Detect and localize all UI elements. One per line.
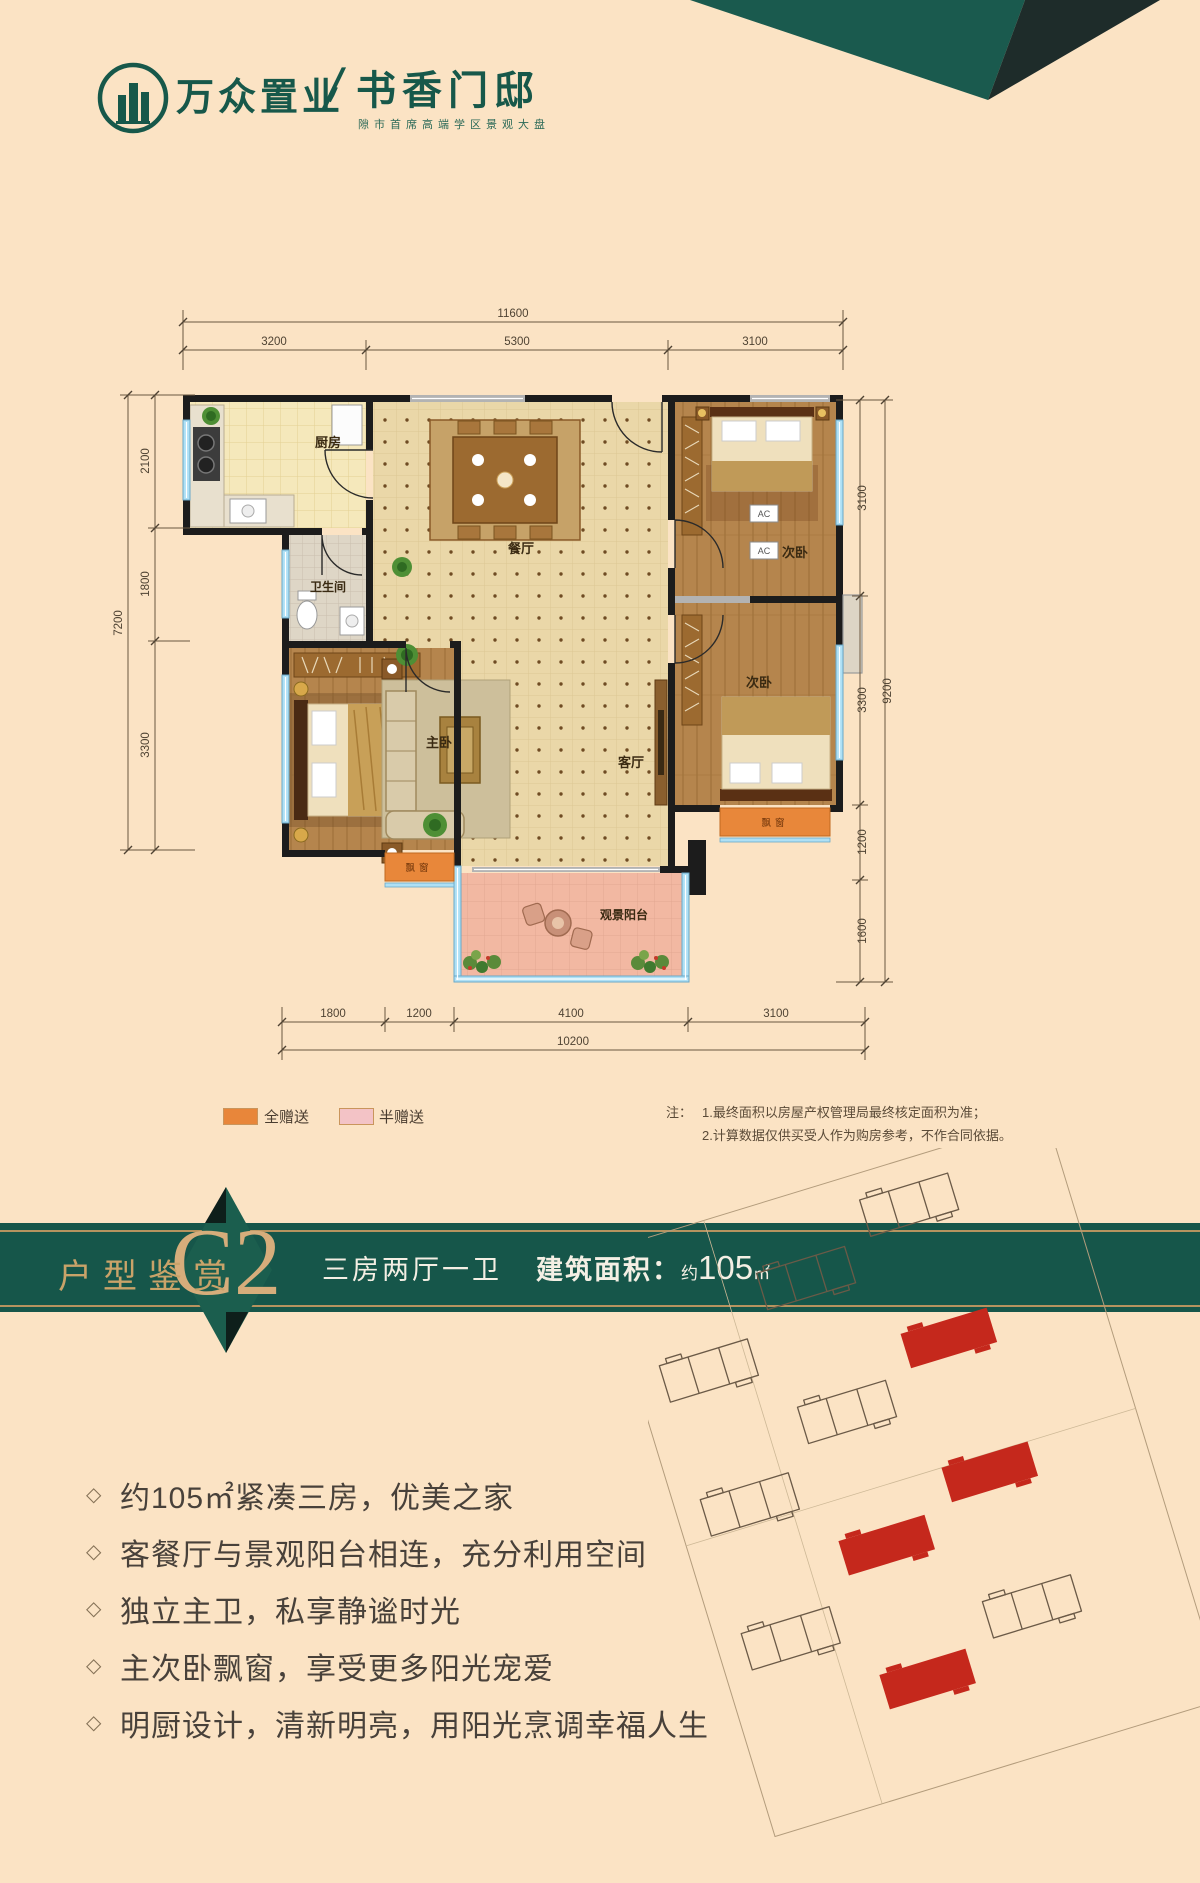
dim-bottom-4: 3100 <box>763 1008 789 1020</box>
label-kitchen: 厨房 <box>315 435 341 450</box>
diamond-bullet-icon: ◇ <box>86 1539 120 1564</box>
legend-swatch-full-gift <box>223 1108 258 1125</box>
dim-right-total: 9200 <box>882 678 894 704</box>
dim-left-2: 1800 <box>140 571 152 597</box>
dim-left-1: 2100 <box>140 448 152 474</box>
svg-text:飘窗: 飘窗 <box>761 817 788 829</box>
dim-left-total: 7200 <box>113 610 125 636</box>
bay-window-bedroom2: 飘窗 <box>720 808 830 842</box>
layout-text: 三房两厅一卫 <box>322 1248 502 1287</box>
outdoor-platform <box>843 595 862 673</box>
dim-right-4: 1600 <box>857 918 869 944</box>
logo-icon <box>94 59 172 137</box>
svg-text:飘窗: 飘窗 <box>405 862 432 874</box>
diamond-bullet-icon: ◇ <box>86 1596 120 1621</box>
dining-furniture <box>430 420 580 540</box>
dim-top-1: 3200 <box>261 336 287 348</box>
diamond-bullet-icon: ◇ <box>86 1653 120 1678</box>
dim-left-3: 3300 <box>140 732 152 758</box>
dim-bottom-2: 1200 <box>406 1008 432 1020</box>
feature-text: 客餐厅与景观阳台相连，充分利用空间 <box>120 1530 647 1574</box>
building-outline <box>648 1168 1083 1713</box>
diamond-bullet-icon: ◇ <box>86 1482 120 1507</box>
dim-bottom-3: 4100 <box>558 1008 584 1020</box>
note-label: 注： <box>666 1101 692 1147</box>
corner-decoration <box>640 0 1200 110</box>
label-master: 主卧 <box>426 735 452 750</box>
feature-item: ◇ 约105㎡紧凑三房，优美之家 <box>86 1466 709 1523</box>
legend-swatch-half-gift <box>339 1108 374 1125</box>
project-name: 书香门邸 <box>356 58 540 116</box>
section-title: 户型鉴赏 <box>58 1249 238 1298</box>
dim-right-3: 1200 <box>857 829 869 855</box>
dim-right-1: 3100 <box>857 485 869 511</box>
dim-right-2: 3300 <box>857 687 869 713</box>
svg-text:AC: AC <box>758 509 771 519</box>
disclaimer-note: 注： 1.最终面积以房屋产权管理局最终核定面积为准； 2.计算数据仅供买受人作为… <box>666 1101 1012 1147</box>
legend-label-half-gift: 半赠送 <box>379 1106 424 1127</box>
label-bedroom1: 次卧 <box>782 545 808 560</box>
diamond-bullet-icon: ◇ <box>86 1710 120 1735</box>
dim-top-2: 5300 <box>504 336 530 348</box>
feature-item: ◇ 独立主卫，私享静谧时光 <box>86 1580 709 1637</box>
feature-text: 独立主卫，私享静谧时光 <box>120 1587 461 1631</box>
label-bedroom2: 次卧 <box>746 675 772 690</box>
site-plan <box>648 1148 1200 1848</box>
dim-top-3: 3100 <box>742 336 768 348</box>
label-bathroom: 卫生间 <box>310 579 346 594</box>
label-living: 客厅 <box>618 755 644 770</box>
note-line-2: 2.计算数据仅供买受人作为购房参考，不作合同依据。 <box>702 1124 1012 1147</box>
feature-item: ◇ 客餐厅与景观阳台相连，充分利用空间 <box>86 1523 709 1580</box>
label-balcony: 观景阳台 <box>600 907 648 922</box>
legend-label-full-gift: 全赠送 <box>264 1106 309 1127</box>
brand-name: 万众置业 <box>176 66 344 121</box>
dim-top-total: 11600 <box>497 308 528 320</box>
note-line-1: 1.最终面积以房屋产权管理局最终核定面积为准； <box>702 1101 1012 1124</box>
floor-plan: AC AC <box>110 255 900 1105</box>
feature-text: 明厨设计，清新明亮，用阳光烹调幸福人生 <box>120 1701 709 1745</box>
svg-text:AC: AC <box>758 546 771 556</box>
feature-text: 约105㎡紧凑三房，优美之家 <box>120 1473 514 1517</box>
bay-window-master: 飘窗 <box>385 853 454 887</box>
dim-bottom-total: 10200 <box>557 1036 589 1048</box>
building-highlighted <box>784 1303 1092 1714</box>
feature-item: ◇ 主次卧飘窗，享受更多阳光宠爱 <box>86 1637 709 1694</box>
project-subtitle: 隙市首席高端学区景观大盘 <box>358 116 550 132</box>
label-dining: 餐厅 <box>507 541 534 556</box>
feature-item: ◇ 明厨设计，清新明亮，用阳光烹调幸福人生 <box>86 1694 709 1751</box>
corner-green-triangle <box>690 0 1025 100</box>
dim-bottom-1: 1800 <box>320 1008 346 1020</box>
feature-text: 主次卧飘窗，享受更多阳光宠爱 <box>120 1644 554 1688</box>
feature-list: ◇ 约105㎡紧凑三房，优美之家 ◇ 客餐厅与景观阳台相连，充分利用空间 ◇ 独… <box>86 1466 709 1751</box>
